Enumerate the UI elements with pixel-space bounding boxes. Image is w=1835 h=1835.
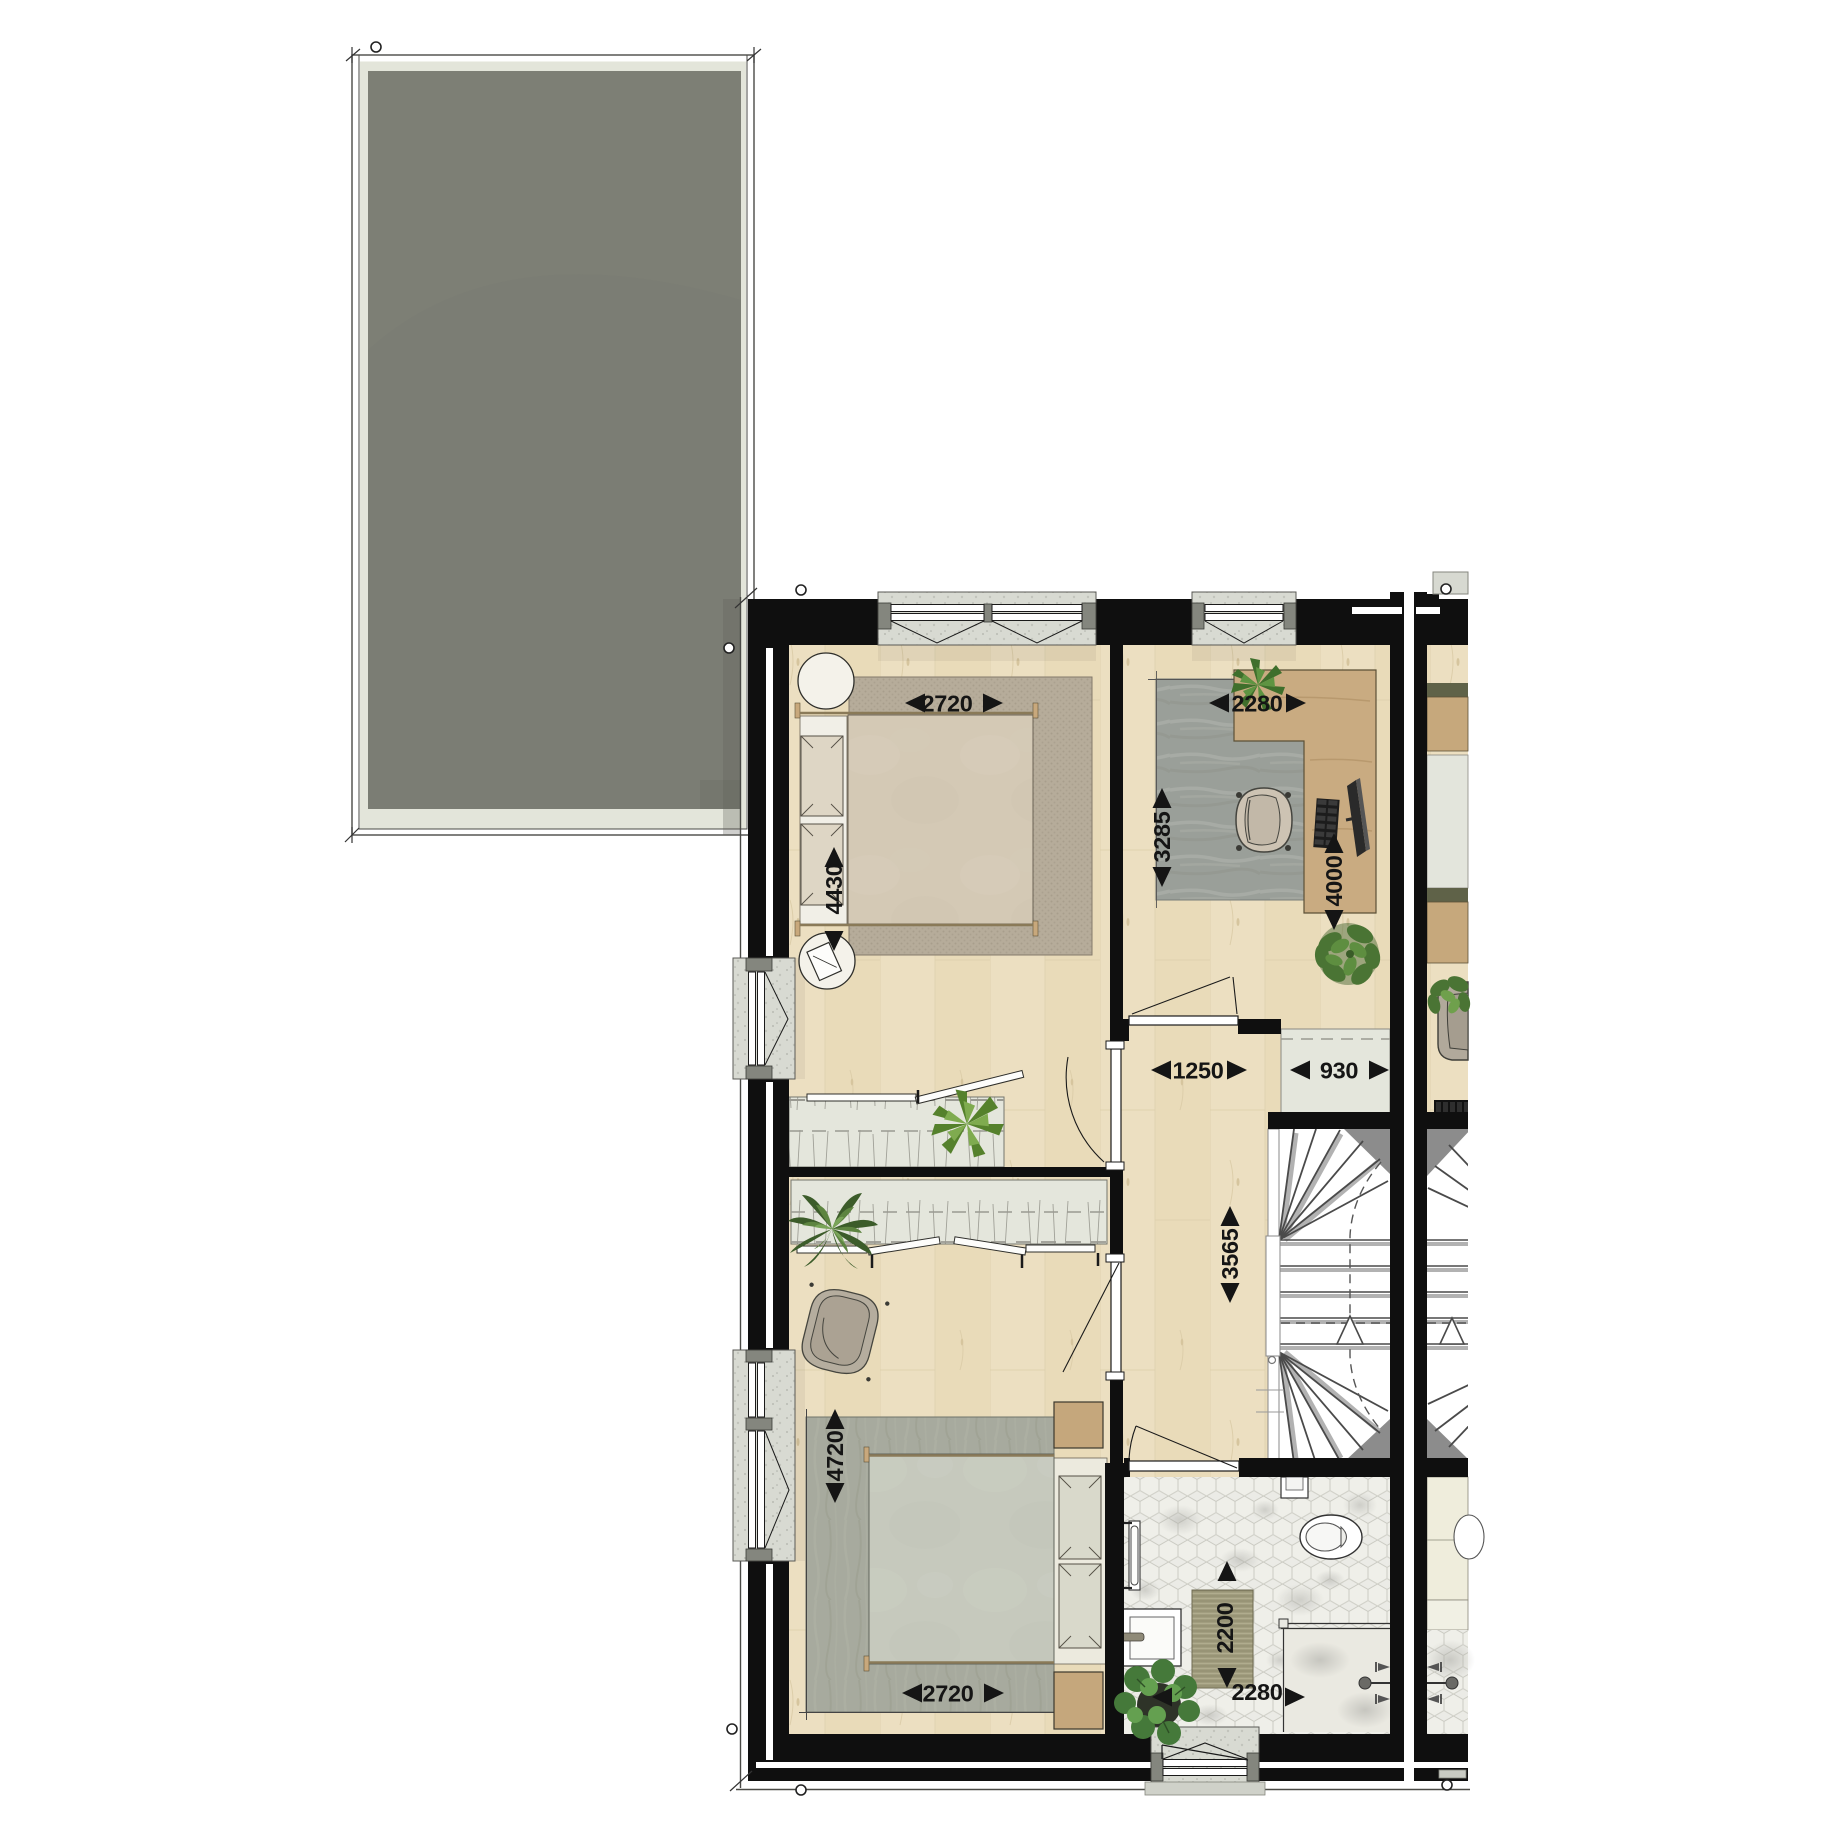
svg-text:2280: 2280 <box>1231 1679 1282 1705</box>
svg-text:930: 930 <box>1320 1058 1359 1084</box>
svg-text:1250: 1250 <box>1172 1058 1223 1084</box>
svg-text:4430: 4430 <box>821 863 847 914</box>
svg-text:2720: 2720 <box>922 1681 973 1707</box>
svg-text:3565: 3565 <box>1217 1228 1243 1279</box>
svg-text:2720: 2720 <box>921 691 972 717</box>
svg-text:2200: 2200 <box>1212 1602 1238 1653</box>
svg-text:2280: 2280 <box>1231 691 1282 717</box>
svg-text:4000: 4000 <box>1321 855 1347 906</box>
svg-text:3285: 3285 <box>1149 811 1175 862</box>
svg-text:4720: 4720 <box>822 1430 848 1481</box>
